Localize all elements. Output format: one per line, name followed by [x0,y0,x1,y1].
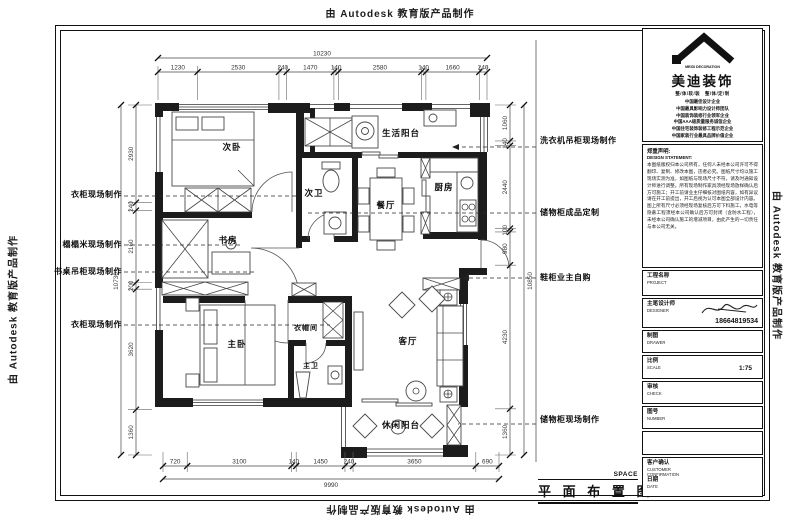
room-label-master-bedroom: 主卧 [227,339,246,349]
number-label-en: NUMBER [647,416,758,421]
svg-text:2930: 2930 [128,146,135,161]
drawer-label-en: DRAWER [647,340,758,345]
svg-text:240: 240 [277,65,288,72]
statement-body: 本图纸版权归本公司所有，任何人未经本公司许可不得翻印、复制、修改本图，违者必究。… [647,162,758,231]
annotation-washer-cabinet: 洗衣机吊柜现场制作 [540,136,620,146]
room-label-dining: 餐厅 [375,200,395,210]
bed2-icon [172,112,254,186]
tatami-icon [162,220,250,278]
svg-text:140: 140 [288,459,299,466]
annotation-wardrobe-1: 衣柜现场制作 [24,190,122,200]
scale-label-cn: 比例 [647,358,758,365]
customer-label-cn: 客户确认 [647,460,758,467]
svg-text:1450: 1450 [313,459,328,466]
svg-text:200: 200 [128,280,135,291]
brand-credential-1: 中国最佳设计企业 [647,99,758,106]
annotation-tatami: 榻榻米现场制作 [24,240,122,250]
cad-sheet: { "watermark": "由 Autodesk 教育版产品制作", "sh… [0,0,798,525]
master-bath-fixtures-icon [296,366,342,398]
svg-text:1470: 1470 [303,65,318,72]
brand-credential-6: 中国家装行业最具品牌价值企业 [647,133,758,140]
svg-text:140: 140 [502,138,509,149]
svg-text:3650: 3650 [407,459,422,466]
scale-box: 比例 SCALE 1:75 [642,355,763,379]
date-label-en: DATE [647,484,758,489]
svg-text:140: 140 [331,65,342,72]
annotation-wardrobe-2: 衣柜现场制作 [24,320,122,330]
svg-text:9990: 9990 [324,482,339,489]
svg-text:3100: 3100 [232,459,247,466]
project-box: 工程名称 PROJECT [642,270,763,296]
svg-text:1360: 1360 [502,424,509,439]
sheet-title: SPACE 平 面 布 置 图 [538,471,638,504]
svg-text:10850: 10850 [527,272,534,290]
svg-text:3620: 3620 [128,342,135,357]
number-label-cn: 图号 [647,409,758,416]
svg-text:980: 980 [502,243,509,254]
room-label-master-bath: 主卫 [303,361,319,370]
room-label-bath2: 次卫 [304,188,323,198]
svg-text:4230: 4230 [502,329,509,344]
svg-text:1660: 1660 [445,65,460,72]
sheet-title-en: SPACE [538,471,638,478]
number-box: 图号 NUMBER [642,406,763,429]
svg-text:140: 140 [418,65,429,72]
statement-box: 郑重声明: DESIGN STATEMENT: 本图纸版权归本公司所有，任何人未… [642,144,763,268]
room-label-living: 客厅 [397,336,417,346]
annotation-desk-cabinet: 书桌吊柜现场制作 [24,267,122,277]
brand-tagline: 整/体/软/装 整/体/定/制 [647,91,758,97]
title-block: MEIDI DECORATION 美迪装饰 整/体/软/装 整/体/定/制 中国… [642,28,763,497]
svg-text:10230: 10230 [313,51,331,58]
svg-text:2580: 2580 [373,65,388,72]
designer-signature [698,300,760,318]
drawer-label-cn: 制图 [647,333,758,340]
check-label-en: CHECK [647,391,758,396]
scale-value: 1:75 [739,365,752,372]
svg-text:240: 240 [478,65,489,72]
svg-text:1360: 1360 [128,425,135,440]
check-label-cn: 审核 [647,384,758,391]
svg-text:1230: 1230 [171,65,186,72]
brand-name: 美迪装饰 [647,70,758,90]
room-label-balcony-leisure: 休闲阳台 [381,420,420,430]
svg-text:2530: 2530 [231,65,246,72]
designer-phone: 18664819534 [715,318,758,325]
statement-head-en: DESIGN STATEMENT: [647,155,758,160]
room-label-kitchen: 厨房 [434,182,453,192]
svg-text:2160: 2160 [128,239,135,254]
brand-logo-text: MEIDI DECORATION [647,65,758,69]
designer-box: 主笔设计师 DESIGNER 18664819534 [642,298,763,328]
date-label-cn: 日期 [647,477,758,484]
annotation-storage-site: 储物柜现场制作 [540,415,620,425]
room-label-study: 书房 [218,235,237,245]
annotation-storage-custom: 储物柜成品定制 [540,208,620,218]
room-label-balcony-life: 生活阳台 [382,128,420,138]
svg-text:1060: 1060 [502,115,509,130]
svg-text:100: 100 [502,224,509,235]
customer-box: 客户确认 CUSTOMER CONFIRMATION 日期 DATE [642,457,763,497]
statement-head-cn: 郑重声明: [647,147,758,155]
room-label-cloakroom: 衣帽间 [294,323,318,332]
brand-logo-icon [668,31,738,65]
svg-text:690: 690 [482,459,493,466]
drawer-box: 制图 DRAWER [642,330,763,353]
kitchen-counter-icon [430,158,478,232]
toilet2-icon [322,162,346,234]
watermark-bottom: 由 Autodesk 教育版产品制作 [300,503,500,518]
annotation-shoe-cabinet: 鞋柜业主自购 [540,273,620,283]
brand-credential-2: 中国最具影响力设计师团队 [647,106,758,113]
room-label-bedroom2: 次卧 [222,142,241,152]
svg-text:2440: 2440 [502,180,509,195]
watermark-right: 由 Autodesk 教育版产品制作 [771,166,786,366]
blank-box [642,431,763,455]
project-label-en: PROJECT [647,280,758,285]
svg-text:240: 240 [128,201,135,212]
project-label-cn: 工程名称 [647,273,758,280]
svg-text:240: 240 [344,459,355,466]
brand-box: MEIDI DECORATION 美迪装饰 整/体/软/装 整/体/定/制 中国… [642,28,763,142]
sheet-title-cn: 平 面 布 置 图 [538,479,638,504]
check-box: 审核 CHECK [642,381,763,404]
svg-text:720: 720 [170,459,181,466]
